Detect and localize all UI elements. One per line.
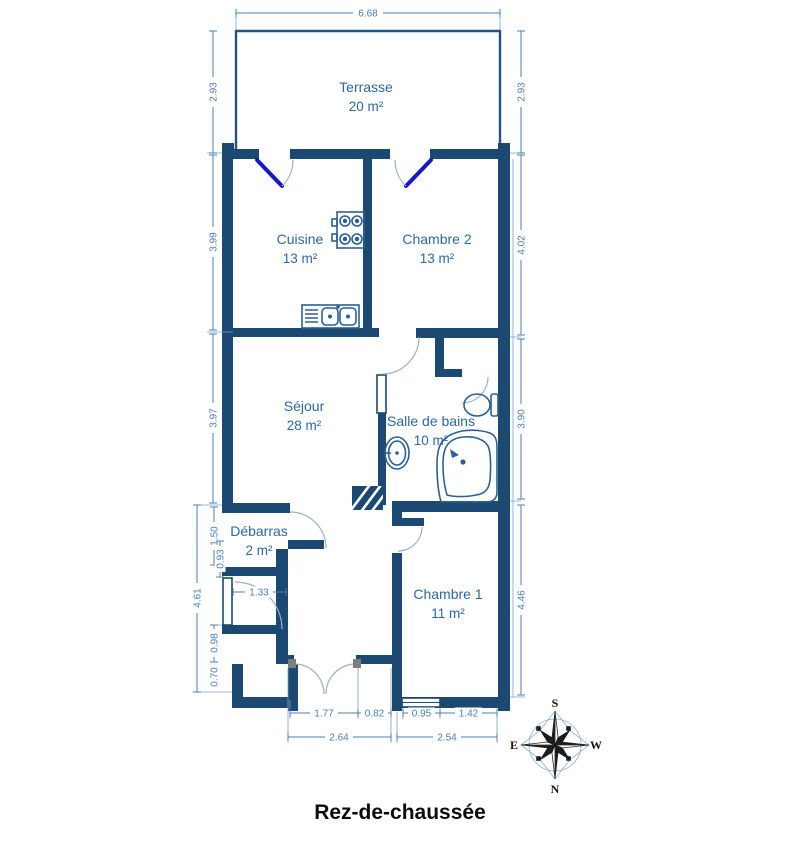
compass-west-label: W xyxy=(590,738,602,752)
dim-chambre1-wall: 1.42 xyxy=(455,708,482,720)
dim-entry-side: 0.82 xyxy=(361,708,388,720)
svg-text:11 m²: 11 m² xyxy=(431,606,465,621)
svg-text:28 m²: 28 m² xyxy=(287,418,322,433)
left-wall-opening xyxy=(223,578,232,625)
svg-text:0.82: 0.82 xyxy=(365,709,385,720)
washbasin-icon xyxy=(385,437,409,469)
extension-lines xyxy=(197,17,525,743)
wall-vestibule-l xyxy=(288,540,324,549)
dim-terrace-left: 2.93 xyxy=(208,77,220,107)
svg-text:2.54: 2.54 xyxy=(437,733,457,744)
french-door-chambre2-arc xyxy=(395,160,406,186)
entry-door-post-left xyxy=(288,659,296,668)
svg-text:20 m²: 20 m² xyxy=(349,99,384,114)
svg-text:4.61: 4.61 xyxy=(193,588,204,608)
french-door-chambre2-leaf xyxy=(406,160,431,186)
svg-text:Salle de bains: Salle de bains xyxy=(387,413,475,429)
dim-vestibule-upper: 0.98 xyxy=(209,629,221,657)
svg-text:0.93: 0.93 xyxy=(216,549,227,569)
wall-chambre2-bains xyxy=(416,328,510,338)
dim-vestibule-lower: 0.70 xyxy=(209,663,221,691)
dim-lower-left-total: 4.61 xyxy=(192,583,204,613)
svg-text:Débarras: Débarras xyxy=(230,523,288,539)
room-label-terrasse: Terrasse 20 m² xyxy=(339,79,393,114)
floor-plan-drawing: Terrasse 20 m² Cuisine 13 m² Chambre 2 1… xyxy=(0,0,799,862)
svg-text:0.95: 0.95 xyxy=(412,709,432,720)
svg-text:Terrasse: Terrasse xyxy=(339,79,393,95)
kitchen-sink-icon xyxy=(302,305,359,328)
wall-lower-left xyxy=(232,664,243,702)
chambre1-door-arc xyxy=(398,527,422,551)
dim-debarras-width: 1.33 xyxy=(245,587,273,599)
svg-text:1.33: 1.33 xyxy=(249,588,269,599)
svg-text:3.99: 3.99 xyxy=(209,232,220,252)
svg-text:2 m²: 2 m² xyxy=(246,543,274,558)
svg-text:13 m²: 13 m² xyxy=(420,251,455,266)
wall-debarras-bottom xyxy=(222,567,276,576)
svg-text:Cuisine: Cuisine xyxy=(277,231,324,247)
room-label-sejour: Séjour 28 m² xyxy=(284,398,325,433)
wall-chambre1-left-b xyxy=(392,553,402,711)
dim-chambre1-right: 4.46 xyxy=(516,585,528,615)
room-label-chambre1: Chambre 1 11 m² xyxy=(413,586,482,621)
svg-text:3.90: 3.90 xyxy=(517,409,528,429)
svg-text:6.68: 6.68 xyxy=(358,9,378,20)
dim-cuisine-left: 3.99 xyxy=(208,227,220,257)
compass-south-label: S xyxy=(552,696,559,710)
svg-text:0.98: 0.98 xyxy=(210,633,221,653)
svg-text:1.77: 1.77 xyxy=(314,709,334,720)
dim-terrace-width: 6.68 xyxy=(353,8,383,20)
dim-chambre2-right: 4.02 xyxy=(516,230,528,260)
dim-chambre1-window: 0.95 xyxy=(408,708,435,720)
svg-text:10 m²: 10 m² xyxy=(414,433,449,448)
wall-top-2 xyxy=(290,149,390,159)
room-label-cuisine: Cuisine 13 m² xyxy=(277,231,324,266)
chambre1-window xyxy=(402,698,440,707)
stove-icon xyxy=(332,212,364,248)
wall-vestibule-h xyxy=(222,625,288,634)
wall-debarras-top xyxy=(222,503,290,513)
svg-text:4.46: 4.46 xyxy=(517,590,528,610)
wall-cuisine-sejour xyxy=(233,328,379,337)
dim-entry-door: 1.77 xyxy=(310,708,338,720)
page-title: Rez-de-chaussée xyxy=(314,801,486,824)
svg-text:4.02: 4.02 xyxy=(517,235,528,255)
wall-left xyxy=(222,149,233,512)
svg-text:13 m²: 13 m² xyxy=(283,251,318,266)
svg-text:2.64: 2.64 xyxy=(329,733,349,744)
dim-debarras-sub: 0.93 xyxy=(215,546,227,572)
chambre2-door-arc xyxy=(382,337,419,374)
dim-debarras-height: 1.50 xyxy=(209,522,221,550)
svg-text:Séjour: Séjour xyxy=(284,398,325,414)
svg-text:Chambre 1: Chambre 1 xyxy=(413,586,482,602)
svg-text:1.50: 1.50 xyxy=(210,526,221,546)
french-door-cuisine-leaf xyxy=(257,160,282,186)
entry-door-post-right xyxy=(353,659,361,668)
svg-text:2.93: 2.93 xyxy=(209,82,220,102)
dim-chambre1-total: 2.54 xyxy=(433,732,461,744)
french-door-cuisine-arc xyxy=(282,160,293,186)
floor-plan-page: Terrasse 20 m² Cuisine 13 m² Chambre 2 1… xyxy=(0,0,799,862)
entry-door-left-arc xyxy=(294,664,324,694)
wall-chambre1-door-stub xyxy=(392,518,424,526)
dim-terrace-right: 2.93 xyxy=(516,77,528,107)
svg-text:Chambre 2: Chambre 2 xyxy=(402,231,471,247)
wall-vestibule-v xyxy=(276,549,288,664)
wall-bains-step-h xyxy=(435,369,462,377)
dim-sejour-left: 3.97 xyxy=(208,403,220,433)
svg-text:1.42: 1.42 xyxy=(459,709,479,720)
entry-door-right-arc xyxy=(326,664,356,694)
wall-right xyxy=(498,149,510,711)
compass-north-label: N xyxy=(551,782,560,796)
svg-text:3.97: 3.97 xyxy=(209,408,220,428)
svg-text:2.93: 2.93 xyxy=(517,82,528,102)
compass-rose-icon: S N E W xyxy=(510,696,602,796)
compass-east-label: E xyxy=(510,738,518,752)
bains-door-leaf xyxy=(377,375,386,413)
dim-entry-total: 2.64 xyxy=(325,732,353,744)
room-label-chambre2: Chambre 2 13 m² xyxy=(402,231,471,266)
dim-bains-right: 3.90 xyxy=(516,404,528,434)
svg-text:0.70: 0.70 xyxy=(210,667,221,687)
